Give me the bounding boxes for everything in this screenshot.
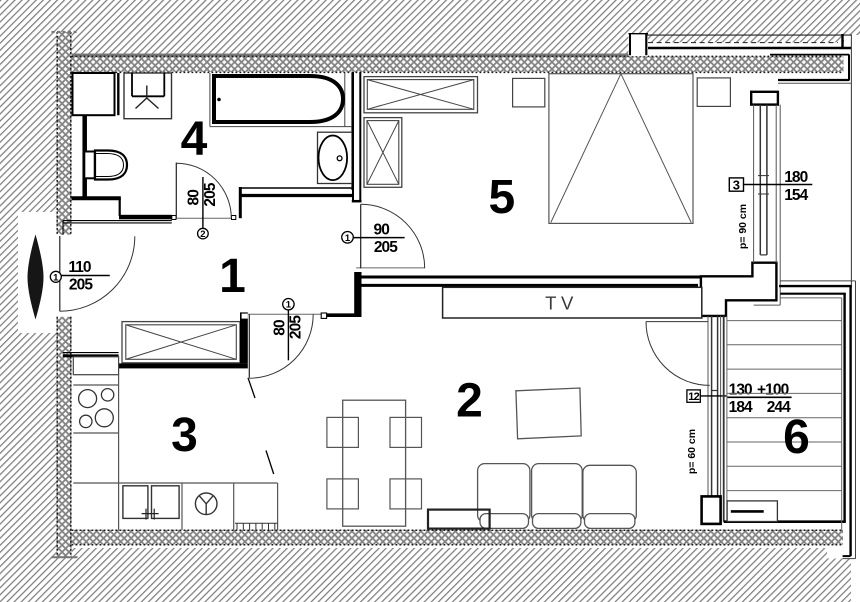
svg-text:205: 205: [374, 239, 398, 256]
svg-text:154: 154: [784, 187, 808, 204]
svg-text:3: 3: [171, 409, 198, 462]
svg-text:180: 180: [784, 169, 807, 186]
svg-text:184: 184: [729, 399, 753, 416]
svg-text:80: 80: [271, 320, 288, 336]
svg-text:p= 90 cm: p= 90 cm: [737, 204, 749, 249]
svg-text:4: 4: [181, 113, 208, 166]
svg-text:TV: TV: [545, 293, 578, 314]
svg-text:3: 3: [733, 177, 740, 192]
svg-text:110: 110: [68, 259, 91, 276]
svg-text:1: 1: [345, 233, 351, 244]
svg-text:12: 12: [688, 391, 699, 403]
svg-text:6: 6: [783, 411, 810, 464]
svg-text:80: 80: [186, 190, 203, 206]
svg-text:1: 1: [219, 250, 246, 303]
svg-text:2: 2: [200, 229, 205, 240]
svg-text:1: 1: [286, 300, 292, 311]
svg-text:205: 205: [288, 315, 305, 339]
svg-text:205: 205: [69, 277, 93, 294]
svg-text:+100: +100: [757, 382, 789, 399]
svg-text:p= 60 cm: p= 60 cm: [686, 429, 698, 474]
svg-text:5: 5: [488, 171, 515, 224]
svg-text:2: 2: [456, 375, 483, 428]
svg-text:130: 130: [729, 382, 752, 399]
svg-text:1: 1: [53, 272, 59, 283]
svg-text:90: 90: [373, 221, 389, 238]
svg-text:205: 205: [202, 182, 219, 206]
